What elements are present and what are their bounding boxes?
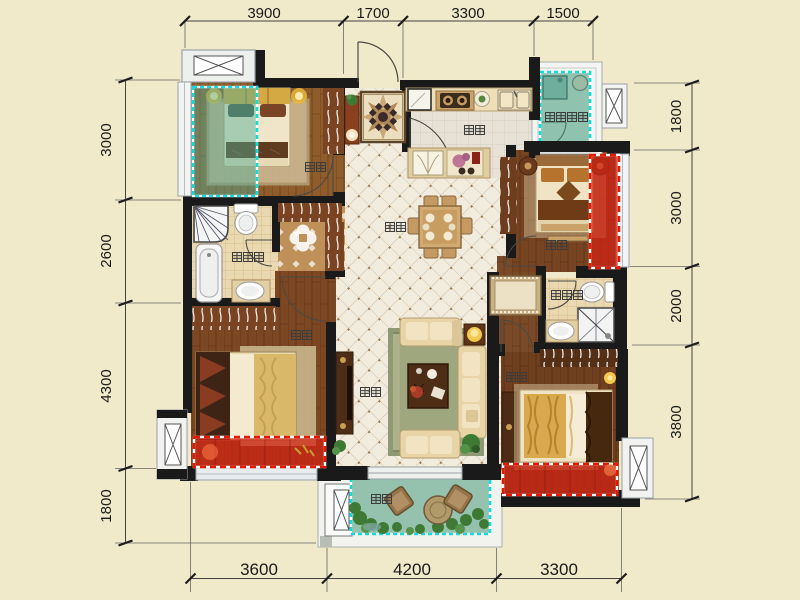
svg-text:4200: 4200: [393, 560, 431, 579]
svg-text:3900: 3900: [247, 5, 280, 22]
svg-text:1500: 1500: [546, 5, 579, 22]
svg-text:3800: 3800: [668, 405, 685, 438]
svg-text:1800: 1800: [668, 100, 685, 133]
svg-text:1800: 1800: [98, 489, 115, 522]
svg-text:3300: 3300: [540, 560, 578, 579]
svg-text:4300: 4300: [98, 369, 115, 402]
svg-text:3000: 3000: [98, 123, 115, 156]
svg-text:3300: 3300: [451, 5, 484, 22]
svg-text:3600: 3600: [240, 560, 278, 579]
svg-text:2600: 2600: [98, 234, 115, 267]
svg-text:2000: 2000: [668, 289, 685, 322]
svg-text:1700: 1700: [356, 5, 389, 22]
svg-text:3000: 3000: [668, 191, 685, 224]
